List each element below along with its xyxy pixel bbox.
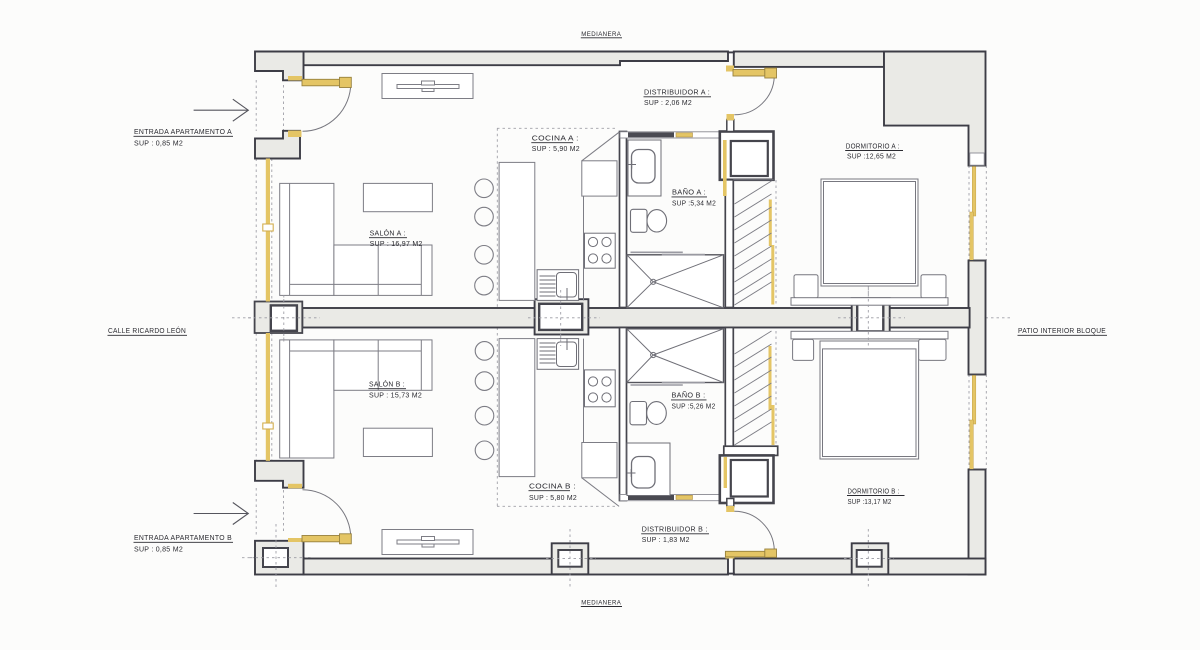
svg-text:ENTRADA APARTAMENTO B: ENTRADA APARTAMENTO B bbox=[134, 533, 232, 542]
svg-text:SUP : 2,06 M2: SUP : 2,06 M2 bbox=[644, 100, 692, 107]
svg-text:COCINA A :: COCINA A : bbox=[532, 134, 579, 143]
svg-text:SUP :12,65 M2: SUP :12,65 M2 bbox=[847, 153, 896, 160]
svg-text:SUP : 0,85 M2: SUP : 0,85 M2 bbox=[134, 547, 183, 554]
svg-text:SUP : 15,73 M2: SUP : 15,73 M2 bbox=[369, 393, 422, 400]
svg-text:SUP : 16,97 M2: SUP : 16,97 M2 bbox=[370, 241, 423, 248]
svg-text:CALLE RICARDO LEÓN: CALLE RICARDO LEÓN bbox=[108, 326, 186, 335]
svg-text:BAÑO B :: BAÑO B : bbox=[672, 391, 706, 400]
svg-text:SALÓN B :: SALÓN B : bbox=[369, 380, 405, 389]
svg-text:SUP :13,17 M2: SUP :13,17 M2 bbox=[848, 499, 892, 506]
svg-text:SALÓN A :: SALÓN A : bbox=[370, 229, 406, 238]
svg-text:COCINA B :: COCINA B : bbox=[529, 482, 576, 491]
svg-text:SUP : 5,80 M2: SUP : 5,80 M2 bbox=[529, 495, 577, 502]
svg-text:SUP : 5,90 M2: SUP : 5,90 M2 bbox=[532, 146, 580, 153]
svg-text:BAÑO A :: BAÑO A : bbox=[672, 188, 706, 197]
svg-text:DISTRIBUIDOR A :: DISTRIBUIDOR A : bbox=[644, 88, 710, 97]
svg-text:SUP : 1,83 M2: SUP : 1,83 M2 bbox=[642, 537, 690, 544]
svg-text:SUP :5,34 M2: SUP :5,34 M2 bbox=[672, 201, 716, 208]
svg-text:SUP : 0,85 M2: SUP : 0,85 M2 bbox=[134, 141, 183, 148]
svg-text:PATIO INTERIOR BLOQUE: PATIO INTERIOR BLOQUE bbox=[1018, 326, 1106, 335]
svg-text:ENTRADA APARTAMENTO A: ENTRADA APARTAMENTO A bbox=[134, 127, 233, 136]
svg-text:DORMITORIO B :: DORMITORIO B : bbox=[848, 486, 900, 495]
svg-text:SUP :5,26 M2: SUP :5,26 M2 bbox=[672, 404, 716, 411]
svg-text:DORMITORIO A :: DORMITORIO A : bbox=[846, 141, 900, 150]
svg-text:DISTRIBUIDOR B :: DISTRIBUIDOR B : bbox=[642, 525, 708, 534]
svg-text:MEDIANERA: MEDIANERA bbox=[581, 31, 621, 38]
svg-text:MEDIANERA: MEDIANERA bbox=[581, 600, 621, 607]
